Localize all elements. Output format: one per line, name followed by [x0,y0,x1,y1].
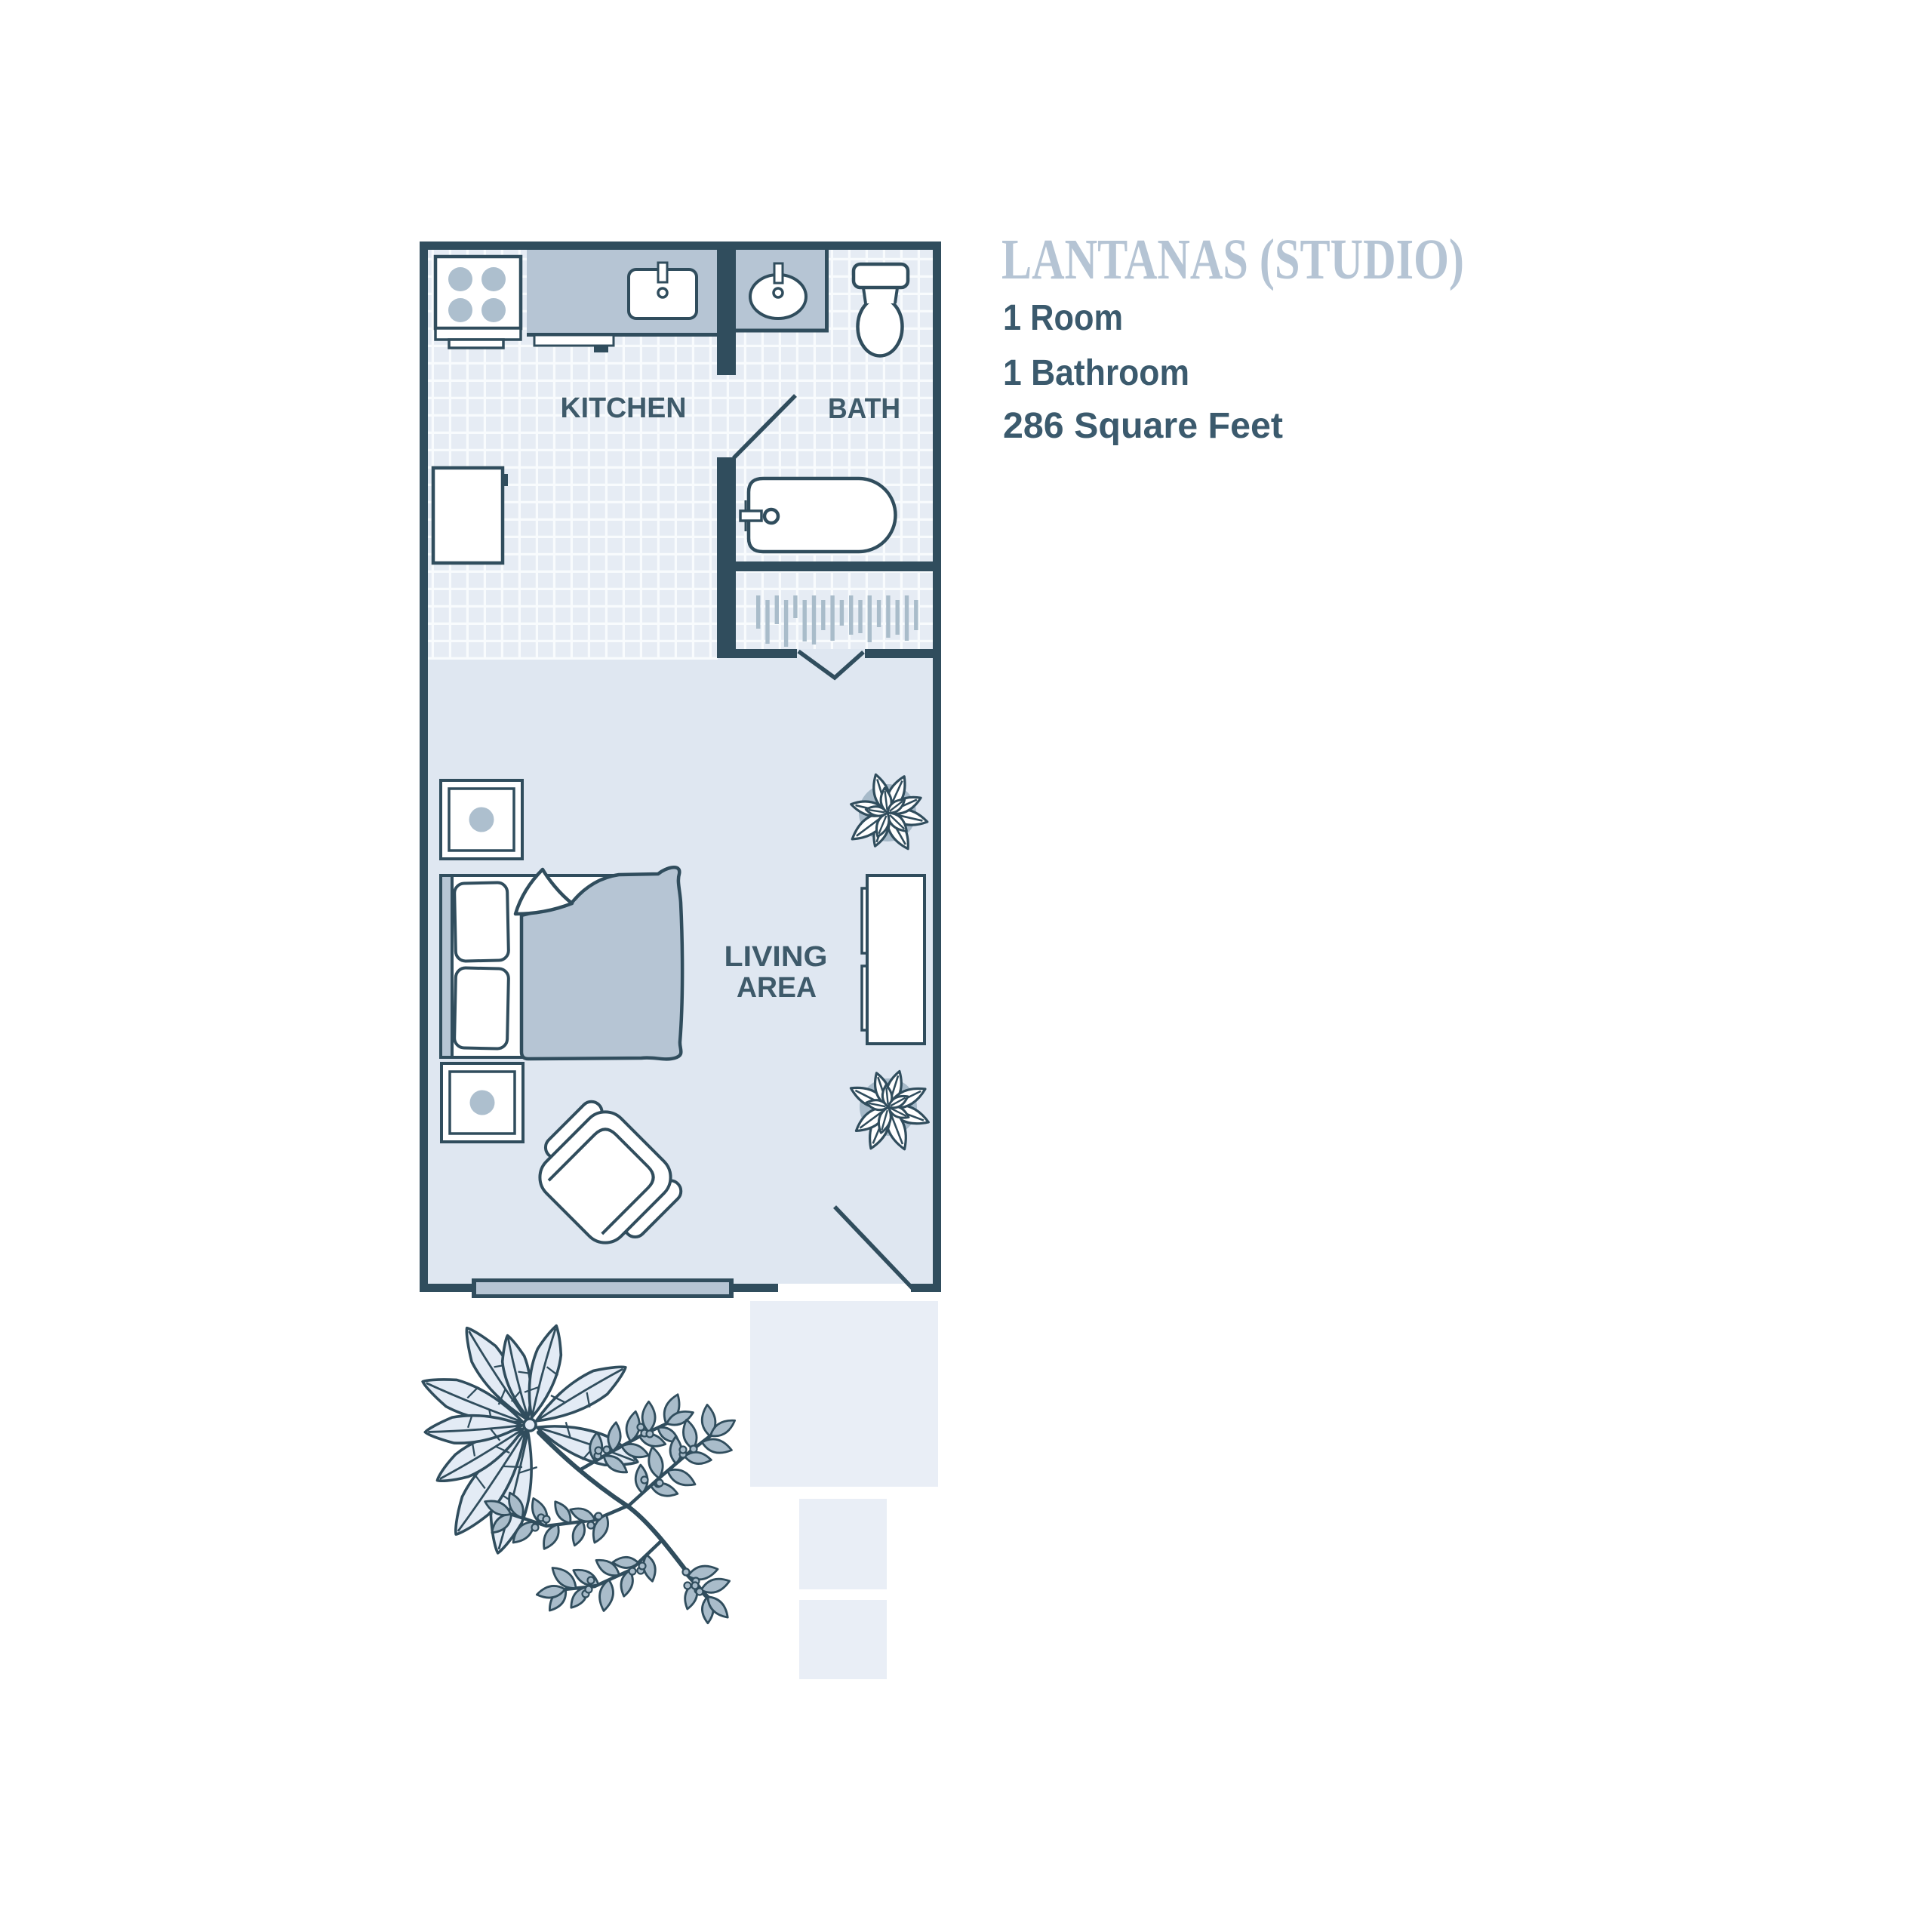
svg-text:1 Bathroom: 1 Bathroom [1003,353,1189,393]
svg-text:AREA: AREA [737,972,817,1004]
svg-text:LANTANAS (STUDIO): LANTANAS (STUDIO) [1001,228,1464,291]
svg-text:KITCHEN: KITCHEN [561,392,687,424]
svg-text:286 Square Feet: 286 Square Feet [1003,406,1283,446]
svg-text:BATH: BATH [828,393,900,425]
svg-text:LIVING: LIVING [724,941,828,973]
svg-text:1 Room: 1 Room [1003,298,1123,338]
